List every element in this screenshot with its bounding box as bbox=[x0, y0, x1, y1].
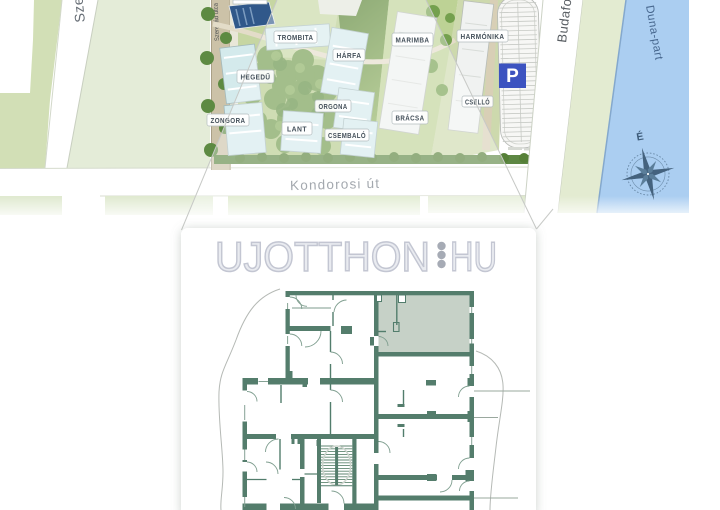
svg-text:TROMBITA: TROMBITA bbox=[278, 33, 314, 42]
svg-text:P: P bbox=[506, 66, 519, 87]
svg-text:ORGONA: ORGONA bbox=[319, 102, 348, 111]
svg-text:CSELLÓ: CSELLÓ bbox=[465, 98, 490, 107]
svg-text:CSEMBALÓ: CSEMBALÓ bbox=[328, 131, 366, 140]
svg-text:BRÁCSA: BRÁCSA bbox=[396, 114, 425, 123]
svg-text:LANT: LANT bbox=[287, 125, 307, 134]
svg-text:HARMÓNIKA: HARMÓNIKA bbox=[461, 32, 505, 41]
svg-text:MARIMBA: MARIMBA bbox=[396, 36, 430, 45]
svg-text:HÁRFA: HÁRFA bbox=[337, 51, 362, 60]
svg-text:UJOTTHON: UJOTTHON bbox=[215, 233, 430, 280]
svg-text:HU: HU bbox=[450, 233, 497, 280]
